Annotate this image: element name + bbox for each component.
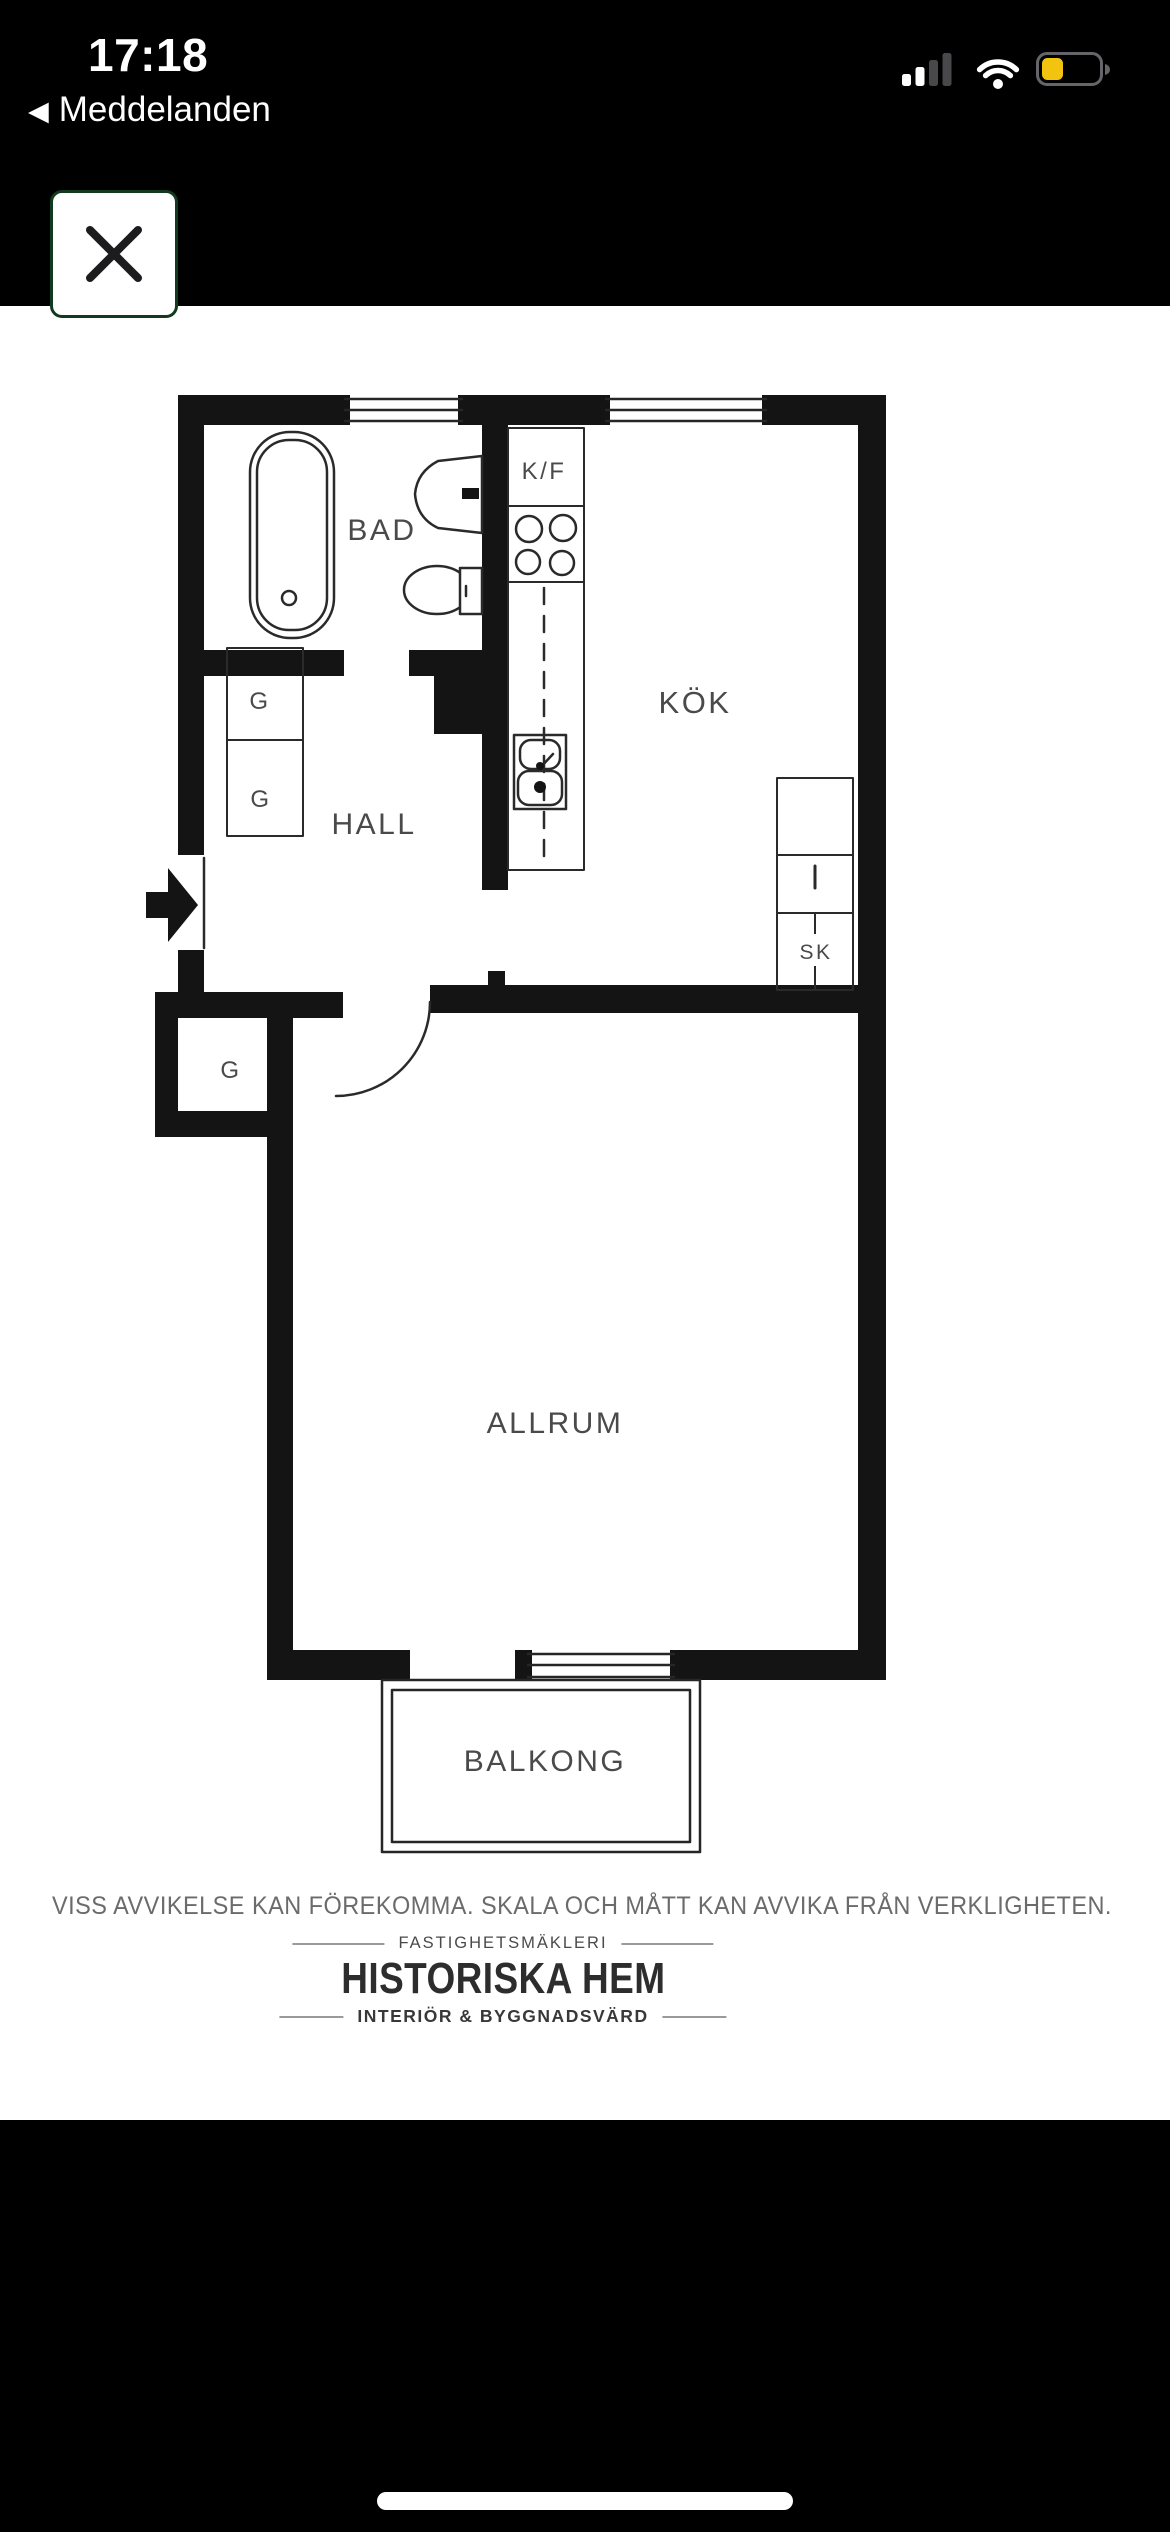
brand-rule-right-2: [663, 2016, 727, 2018]
door-swing-arc: [336, 1002, 430, 1096]
status-time: 17:18: [88, 28, 208, 82]
washbasin-icon: [415, 456, 482, 533]
room-label-balkong: BALKONG: [464, 1745, 627, 1778]
wifi-icon: [972, 52, 1024, 90]
label-sk: SK: [799, 941, 832, 964]
room-label-allrum: ALLRUM: [487, 1407, 624, 1440]
photo-viewer: BAD K/F KÖK G G HALL SK G ALLRUM BALKONG…: [0, 0, 1170, 2532]
room-label-kok: KÖK: [659, 685, 732, 720]
home-indicator[interactable]: [377, 2492, 793, 2510]
back-button[interactable]: ◀ Meddelanden: [28, 90, 271, 130]
brand-rule-right: [622, 1943, 714, 1945]
brand-top: FASTIGHETSMÄKLERI: [398, 1934, 607, 1953]
entry-arrow-icon: [146, 868, 198, 942]
back-chevron-icon: ◀: [28, 98, 49, 125]
room-label-bad: BAD: [347, 514, 416, 547]
back-label: Meddelanden: [59, 90, 271, 130]
floor-plan-drawing: BAD K/F KÖK G G HALL SK G ALLRUM BALKONG: [146, 395, 886, 1852]
brand-rule-left: [292, 1943, 384, 1945]
bottom-bar: [0, 2120, 1170, 2532]
close-icon: [53, 193, 175, 315]
cellular-signal-icon: [902, 52, 956, 87]
battery-icon: [1036, 52, 1112, 88]
plan-walls: [155, 395, 886, 1680]
brand-logo: FASTIGHETSMÄKLERI HISTORISKA HEM INTERIÖ…: [279, 1934, 726, 2027]
brand-bottom: INTERIÖR & BYGGNADSVÄRD: [357, 2006, 648, 2027]
toilet-icon: [404, 566, 482, 614]
disclaimer-text: VISS AVVIKELSE KAN FÖREKOMMA. SKALA OCH …: [52, 1892, 1112, 1921]
label-g-upper: G: [249, 688, 270, 715]
stove-icon: [516, 515, 576, 575]
close-button[interactable]: [50, 190, 178, 318]
label-g-lower: G: [250, 786, 271, 813]
brand-name: HISTORISKA HEM: [341, 1954, 665, 2004]
brand-bottom-row: INTERIÖR & BYGGNADSVÄRD: [279, 2006, 726, 2027]
label-kf: K/F: [522, 458, 567, 485]
label-g-entry: G: [220, 1057, 241, 1084]
brand-top-row: FASTIGHETSMÄKLERI: [292, 1934, 713, 1953]
kitchen-counter: [508, 428, 584, 870]
brand-rule-left-2: [279, 2016, 343, 2018]
room-label-hall: HALL: [331, 808, 416, 841]
kitchen-sink-icon: [514, 735, 566, 809]
bathtub-icon: [250, 432, 334, 638]
